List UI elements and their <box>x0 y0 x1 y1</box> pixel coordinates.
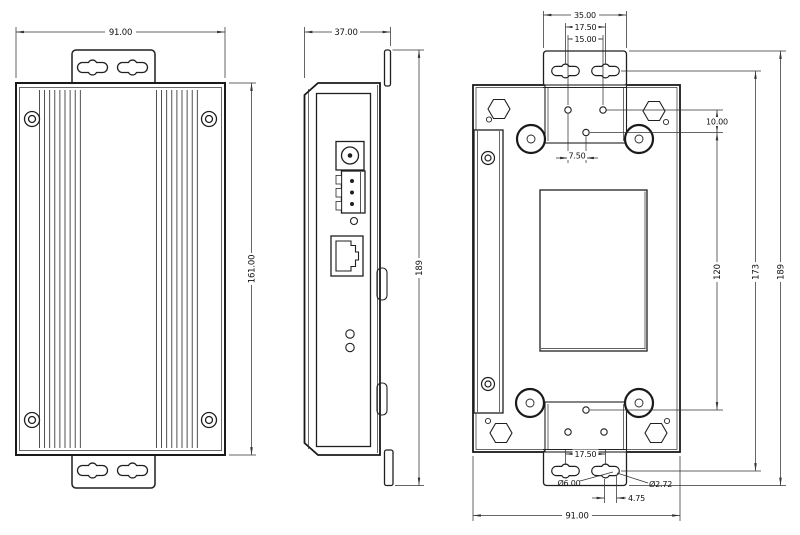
dc-power-jack <box>336 142 364 171</box>
dim-label-hole-diameter: Ø2.72 <box>649 479 672 489</box>
side-top-tab <box>385 50 391 86</box>
back-top-slot-left <box>552 64 580 78</box>
front-top-slot-left <box>78 60 108 75</box>
front-top-slot-right <box>118 60 148 75</box>
dim-label-back-overall-height: 189 <box>777 264 787 280</box>
dim-label-slot-spacing-bottom: 17.50 <box>575 450 597 459</box>
dim-label-slot-span: 173 <box>752 264 762 280</box>
dim-side-height-group: 189 <box>393 50 426 486</box>
dim-label-bracket-width: 35.00 <box>574 11 596 20</box>
front-bottom-slot-right <box>118 463 148 478</box>
dim-label-hole-offset-horizontal: 7.50 <box>568 152 585 161</box>
dim-label-side-width: 37.00 <box>334 28 357 38</box>
dim-label-slot-diameter: Ø6.00 <box>557 478 580 488</box>
dim-label-hole-span: 120 <box>713 264 723 280</box>
dim-label-front-width: 91.00 <box>109 28 132 38</box>
din-rail-strip <box>474 130 503 413</box>
back-view: 35.00 17.50 15.00 10.00 7.50 <box>473 11 787 522</box>
dim-label-hole-spacing: 15.00 <box>575 35 597 44</box>
side-view: 37.00 189 <box>305 27 426 486</box>
dim-label-front-height: 161.00 <box>248 255 258 284</box>
dim-label-side-height: 189 <box>415 260 425 276</box>
dim-label-slot-spacing-top: 17.50 <box>575 23 597 32</box>
rj45-port <box>331 236 363 276</box>
back-top-slot-right <box>592 64 620 78</box>
terminal-block <box>336 171 365 213</box>
dim-side-width-group: 37.00 <box>305 27 391 78</box>
dim-label-slot-end-offset: 4.75 <box>628 494 645 503</box>
technical-drawing-canvas: 91.00 161.00 <box>0 0 800 535</box>
front-body <box>16 83 225 455</box>
side-bottom-tab <box>385 450 394 486</box>
dim-front-height-group: 161.00 <box>229 83 258 455</box>
front-view: 91.00 161.00 <box>16 27 258 488</box>
front-bottom-slot-left <box>78 463 108 478</box>
dim-label-back-overall-width: 91.00 <box>565 512 588 522</box>
dim-label-hole-offset-vertical: 10.00 <box>706 118 728 127</box>
